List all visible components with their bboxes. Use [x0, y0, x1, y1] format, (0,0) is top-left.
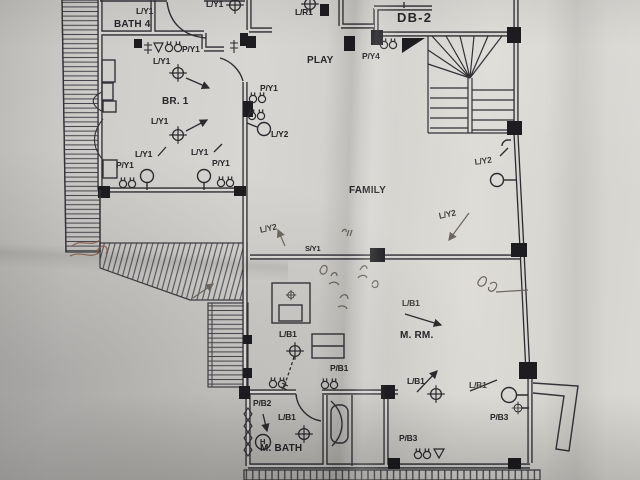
detail-lines [62, 0, 578, 466]
hatch-left-roof-strip [62, 0, 100, 252]
room-label-bath4: BATH 4 [114, 20, 151, 30]
room-label-play: PLAY [307, 56, 334, 66]
switch-bath4 [144, 42, 152, 54]
circuit-label: L/R1 [295, 8, 313, 17]
hatch-deck-below-br1 [100, 243, 247, 300]
floor-plan-drawing [0, 0, 640, 480]
circuit-label: P/Y1 [116, 161, 134, 170]
light-br1-upper [169, 64, 187, 82]
exterior-ledge [533, 383, 578, 451]
circuit-label: P/Y1 [212, 159, 230, 168]
circuit-label-hand: L/B1 [402, 299, 420, 308]
room-label-mrm: M. RM. [400, 331, 433, 341]
circuit-label: L/Y1 [135, 150, 152, 159]
light-mbath [295, 425, 313, 443]
light-br1-lower [169, 126, 187, 144]
tv-outlet-symbol [434, 449, 444, 458]
circuit-label: P/Y1 [182, 45, 200, 54]
circuit-label: L/Y1 [206, 0, 223, 9]
room-label-mbath: M. BATH [260, 444, 302, 454]
circuit-label: P/Y1 [260, 84, 278, 93]
door-arc-mbath [296, 394, 321, 421]
circuit-label: L/Y2 [271, 130, 288, 139]
db-board-label: DB-2 [397, 11, 432, 24]
circuit-label-hand: L/B1 [469, 381, 487, 390]
circuit-label: P/B2 [253, 399, 271, 408]
circuit-label: L/Y1 [136, 7, 153, 16]
exterior-steps [208, 303, 248, 387]
floor-plan-photo: L/Y1 L/Y1 L/R1 DB-2 BATH 4 P/Y1 P/Y4 PLA… [0, 0, 640, 480]
hatch-bottom-deck [244, 470, 540, 480]
room-label-family: FAMILY [349, 186, 386, 196]
circuit-label: L/B1 [278, 413, 296, 422]
switch-br1-door [230, 40, 238, 53]
circuit-label: P/B1 [330, 364, 348, 373]
circuit-label-hand: L/Y2 [474, 156, 492, 167]
circuit-label: P/B3 [490, 413, 508, 422]
scribble-wall [342, 229, 352, 236]
circuit-label: L/Y1 [153, 57, 170, 66]
switch-label: S/Y1 [305, 245, 320, 253]
circuit-label: P/B3 [399, 434, 417, 443]
light-mrm [427, 385, 445, 403]
bell-symbol [154, 43, 163, 52]
circuit-label: L/Y1 [151, 117, 168, 126]
light-corridor [286, 342, 304, 360]
shower-tray [331, 405, 348, 443]
light-closet [286, 290, 297, 301]
scribble-se [478, 277, 528, 292]
door-arc-br1 [220, 58, 243, 81]
door-mark-stair [502, 140, 511, 146]
circuit-label: L/B1 [407, 377, 425, 386]
scribble-corridor [320, 265, 378, 309]
circuit-label: L/B1 [279, 330, 297, 339]
heater-letter: H [260, 438, 265, 446]
circuit-label: P/Y4 [362, 52, 380, 61]
light-ly1-top [226, 0, 244, 14]
db-symbol [402, 38, 425, 53]
wall-columns [98, 4, 537, 469]
room-label-br1: BR. 1 [162, 97, 189, 107]
staircase [428, 36, 516, 133]
circuit-label: L/Y1 [191, 148, 208, 157]
closet [272, 283, 310, 323]
